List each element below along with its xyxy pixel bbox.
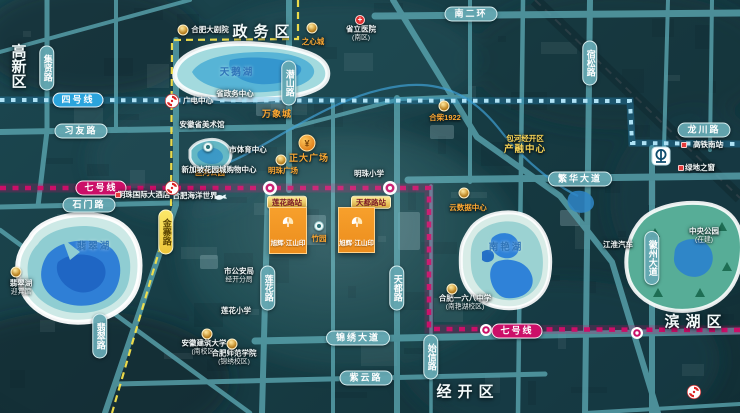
- white-badge-icon: [314, 221, 324, 231]
- project-name: 旭辉·江山印: [339, 237, 374, 247]
- poi-label-school168: 合肥一六八中学(南艳湖校区): [439, 294, 492, 313]
- lake-label-nanyanhu: 南艳湖: [489, 239, 524, 253]
- gold-badge-icon: [11, 267, 22, 278]
- road-pill-nanerhuan: 南二环: [444, 7, 497, 22]
- poi-label-xinjiapo: 新加坡花园城购物中心: [182, 165, 257, 175]
- road-pill-qianshan: 潜山路: [281, 61, 296, 106]
- poi-label-chanrong-line1: 包河经开区: [506, 134, 544, 143]
- gold-circle-lg-icon: ¥: [299, 135, 316, 152]
- poi-label-gaotienanzhan-line1: 高铁南站: [693, 140, 723, 149]
- poi-label-yingbinguan: 翡翠湖迎宾馆: [10, 279, 33, 298]
- region-label-zhengwu: 政务区: [232, 21, 295, 42]
- poi-label-mingzhuhotel: 明珠国际大酒店: [118, 190, 171, 200]
- poi-label-gonganju-line2: 经开分局: [224, 276, 254, 285]
- poi-label-zhongyang-line1: 中央公园: [689, 227, 719, 236]
- poi-label-wanxiangcheng: 万象城: [262, 109, 292, 121]
- poi-label-mingzhuplaza: 明珠广场: [268, 166, 298, 176]
- poi-label-lvdi-line1: 绿地之窗: [685, 163, 715, 172]
- metro-logo-icon: [687, 385, 702, 400]
- poi-label-wanxiangcheng-line1: 万象城: [262, 109, 292, 119]
- poi-label-school168-line2: (南艳湖校区): [439, 303, 492, 312]
- poi-label-shengliyiyuan-line1: 省立医院: [346, 25, 376, 34]
- poi-label-gonganju: 市公安局经开分局: [224, 267, 254, 286]
- poi-label-zhongyang-line2: (在建): [689, 236, 719, 245]
- high-speed-rail-station-icon: [651, 146, 671, 166]
- poi-label-yunshuju-line1: 云数据中心: [449, 203, 487, 212]
- poi-label-jianghuai-line1: 江淮汽车: [603, 240, 633, 249]
- poi-label-meishuguan: 安徽省美术馆: [180, 120, 225, 130]
- road-pill-fanhua: 繁华大道: [548, 172, 612, 187]
- poi-label-mingzhuhotel-line1: 明珠国际大酒店: [118, 190, 171, 199]
- metro-logo-icon: [165, 181, 180, 196]
- poi-label-lianhuaxiaoxue-line1: 莲花小学: [221, 306, 251, 315]
- poi-label-lianhuaxiaoxue: 莲花小学: [221, 306, 251, 316]
- map-canvas[interactable]: 高新区政务区滨湖区经开区集贤路习友路潜山路南二环宿松路龙川路繁华大道石门路莲花路…: [0, 0, 740, 413]
- poi-label-zhongyang: 中央公园(在建): [689, 227, 719, 246]
- poi-label-shifanxueyuan-line2: (锦绣校区): [212, 358, 257, 367]
- poi-label-shifanxueyuan: 合肥师范学院(锦绣校区): [212, 349, 257, 368]
- red-cross-icon: +: [355, 15, 365, 25]
- road-pill-shimen: 石门路: [62, 198, 115, 213]
- poi-label-zhuyuan: 竹园: [312, 234, 327, 244]
- poi-label-mingzhuplaza-line1: 明珠广场: [268, 166, 298, 175]
- road-pill-ziyun: 紫云路: [339, 371, 392, 386]
- poi-label-guangdian-line1: 广电中心: [183, 96, 213, 105]
- poi-label-chanrong-line2: 产融中心: [504, 144, 546, 156]
- poi-label-zhixincheng: 之心城: [302, 37, 325, 47]
- poi-label-theatre: 合肥大剧院: [191, 25, 229, 35]
- project-logo-icon: [280, 214, 296, 235]
- poi-label-yingbinguan-line2: 迎宾馆: [10, 288, 33, 297]
- poi-label-hechai-line1: 合柴1922: [429, 113, 461, 122]
- gold-badge-icon: [307, 23, 318, 34]
- road-pill-susong: 宿松路: [582, 41, 597, 86]
- road-pill-lianhua: 莲花路: [260, 266, 275, 311]
- poi-label-gonganju-line1: 市公安局: [224, 267, 254, 276]
- gold-badge-icon: [439, 101, 450, 112]
- poi-label-tiyu-line1: 市体育中心: [229, 145, 267, 154]
- lake-label-feicuihu: 翡翠湖: [77, 238, 112, 252]
- region-label-gaoxin: 高新区: [8, 44, 29, 89]
- red-square-icon: [681, 142, 687, 148]
- road-pill-shixin: 始信路: [423, 335, 438, 380]
- road-pill-jinxiu: 锦绣大道: [326, 331, 390, 346]
- poi-label-zhixincheng-line1: 之心城: [302, 37, 325, 46]
- poi-label-shengliyiyuan-line2: (南区): [346, 34, 376, 43]
- poi-label-guangdian: 广电中心: [183, 96, 213, 106]
- project-block-proj1: 旭辉·江山印: [269, 207, 307, 254]
- gold-badge-icon: [202, 329, 213, 340]
- road-pill-jinzhai: 金寨路: [158, 210, 173, 255]
- poi-label-meishuguan-line1: 安徽省美术馆: [180, 120, 225, 129]
- lake-label-tianehu: 天鹅湖: [220, 64, 255, 78]
- project-name: 旭辉·江山印: [271, 237, 306, 247]
- road-pill-xiyou: 习友路: [54, 124, 107, 139]
- white-badge-icon: [203, 142, 213, 152]
- gold-badge-icon: [447, 284, 458, 295]
- road-pill-tiandu: 天都路: [389, 266, 404, 311]
- project-logo-icon: [349, 214, 365, 235]
- region-label-binhu: 滨湖区: [664, 311, 727, 332]
- gold-badge-icon: [178, 25, 189, 36]
- red-square-icon: [678, 165, 684, 171]
- road-pill-longchuan: 龙川路: [677, 123, 730, 138]
- red-square-icon: [115, 192, 121, 198]
- poi-label-zhengda-line1: 正大广场: [289, 153, 329, 163]
- poi-label-mingzhuxiaoxue-line1: 明珠小学: [354, 169, 384, 178]
- metro-logo-icon: [165, 94, 180, 109]
- poi-label-mingzhuxiaoxue: 明珠小学: [354, 169, 384, 179]
- metro-line-pill-line4: 四号线: [52, 93, 103, 108]
- poi-label-theatre-line1: 合肥大剧院: [191, 25, 229, 34]
- poi-label-jianzhudaxue-line1: 安徽建筑大学: [182, 339, 227, 348]
- road-pill-huizhou: 徽州大道: [644, 231, 659, 285]
- poi-label-zhengda: 正大广场: [289, 153, 329, 165]
- project-block-proj2: 旭辉·江山印: [338, 207, 375, 253]
- poi-label-jianghuai: 江淮汽车: [603, 240, 633, 250]
- poi-label-school168-line1: 合肥一六八中学: [439, 294, 492, 303]
- gold-badge-icon: [227, 339, 238, 350]
- poi-label-zhengwucenter-line1: 省政务中心: [216, 89, 254, 98]
- gold-badge-icon: [459, 188, 470, 199]
- poi-label-lvdi: 绿地之窗: [685, 163, 715, 173]
- road-pill-feicui: 翡翠路: [92, 314, 107, 359]
- poi-label-chanrong: 包河经开区产融中心: [504, 134, 546, 156]
- poi-label-shifanxueyuan-line1: 合肥师范学院: [212, 349, 257, 358]
- poi-label-hechai: 合柴1922: [429, 113, 461, 123]
- whale-icon: [214, 193, 229, 201]
- poi-label-gaotienanzhan: 高铁南站: [693, 140, 723, 150]
- poi-label-xinjiapo-line1: 新加坡花园城购物中心: [182, 165, 257, 174]
- region-label-jingkai: 经开区: [436, 381, 499, 402]
- lake-feicuihu: [18, 215, 140, 323]
- gold-badge-icon: [276, 155, 287, 166]
- poi-label-yunshuju: 云数据中心: [449, 203, 487, 213]
- poi-label-zhengwucenter: 省政务中心: [216, 89, 254, 99]
- poi-label-yingbinguan-line1: 翡翠湖: [10, 279, 33, 288]
- poi-label-tiyu: 市体育中心: [229, 145, 267, 155]
- road-pill-jixian: 集贤路: [39, 46, 54, 91]
- poi-label-zhuyuan-line1: 竹园: [312, 234, 327, 243]
- metro-line-pill-line7b: 七号线: [491, 324, 542, 339]
- poi-label-shengliyiyuan: 省立医院(南区): [346, 25, 376, 44]
